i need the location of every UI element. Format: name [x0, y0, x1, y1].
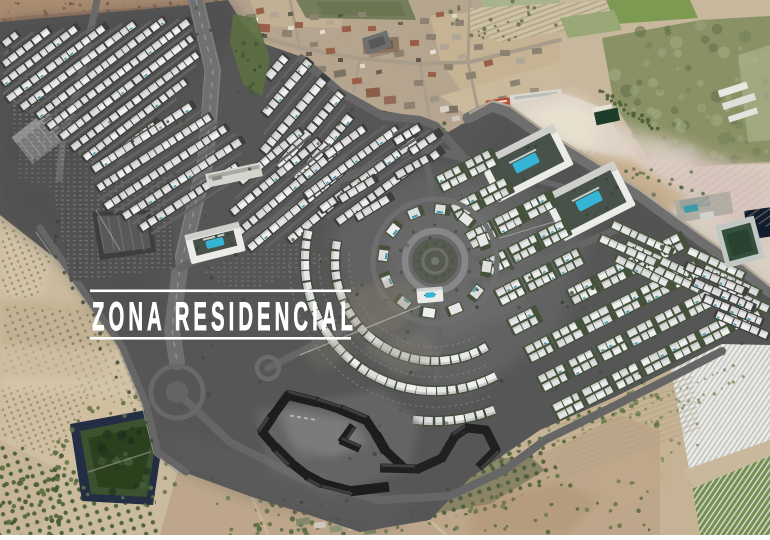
- svg-text:ZONA RESIDENCIAL: ZONA RESIDENCIAL: [92, 295, 357, 339]
